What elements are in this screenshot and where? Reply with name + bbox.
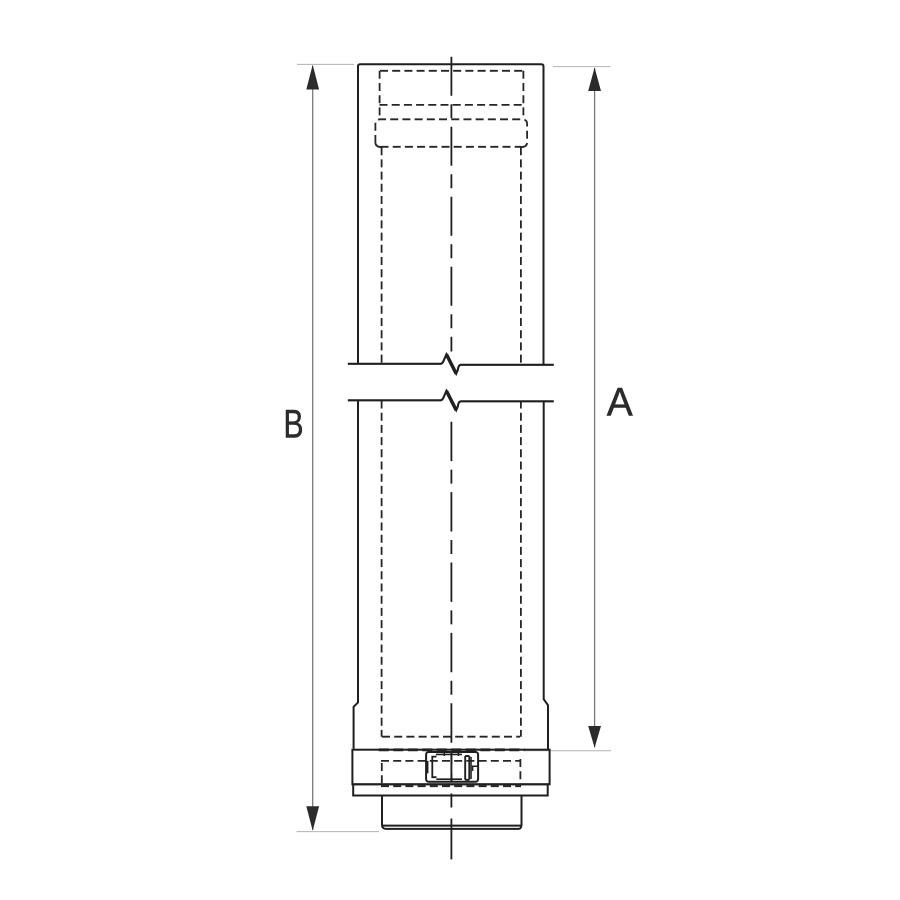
svg-text:B: B xyxy=(284,403,304,447)
svg-text:A: A xyxy=(607,381,633,425)
